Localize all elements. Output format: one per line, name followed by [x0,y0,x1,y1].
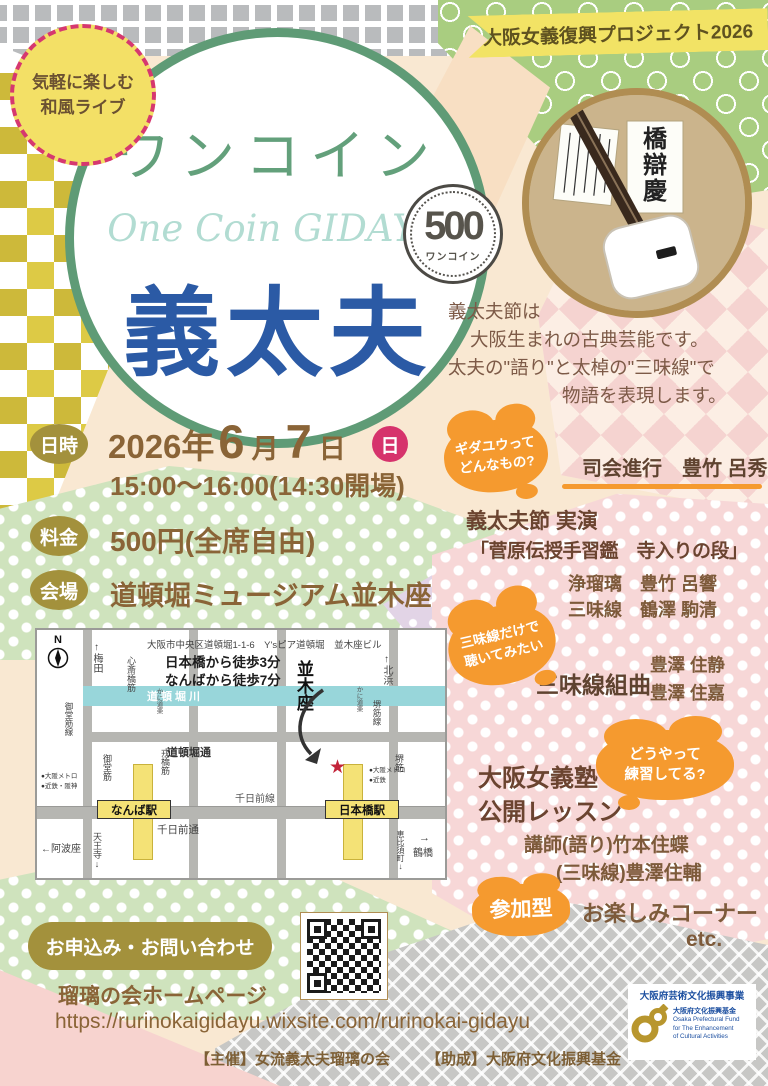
flyer-poster: 気軽に楽しむ 和風ライブ 大阪女義復興プロジェクト2026 ワンコイン One … [0,0,768,1086]
walk-from-nihonbashi: 日本橋から徒歩3分 [165,654,281,672]
500yen-coin-icon: 500 ワンコイン [403,184,503,284]
shamisen-photo: 橋辯慶 [522,88,752,318]
date-day-unit: 日 [319,427,346,466]
map-label-dotonbori-dori: 道頓堀通 [167,744,211,760]
organizer-credit: 【主催】女流義太夫瑠璃の会 [195,1048,390,1069]
map-label-sennichimae-line: 千日前線 [235,790,275,805]
datetime-badge: 日時 [30,424,88,464]
joruri-credit: 浄瑠璃 豊竹 呂響 [568,570,717,596]
map-label-ebisucho: 恵比須町↓ [395,830,406,871]
date-year: 2026年 [108,420,214,468]
title-kanji: 義太夫 [74,254,481,395]
map-nihonbashi-notes: ●大阪メトロ ●近鉄 [369,766,405,786]
qr-code [300,912,388,1000]
map-label-shinsaibashisuji: 心斎橋筋 [125,656,138,692]
map-label-tsuruhashi: 鶴橋 [413,844,433,859]
walk-from-namba: なんばから徒歩7分 [165,672,281,690]
event-fee: 500円(全席自由) [110,520,315,560]
fund-logo-title: 大阪府芸術文化振興事業 [631,988,753,1002]
project-ribbon-text: 大阪女義復興プロジェクト2026 [483,16,754,50]
suite-performer2: 豊澤 住嘉 [650,680,725,705]
etc-label: etc. [686,928,722,952]
participation-label: 参加型 [489,894,553,926]
fund-name-en2: for The Enhancement [673,1025,740,1034]
svg-text:橋辯慶: 橋辯慶 [643,126,668,205]
suite-performer1: 豊澤 住静 [650,652,725,677]
fund-logo-text: 大阪府文化振興基金 Osaka Prefectural Fund for The… [673,1006,740,1042]
grant-credit: 【助成】大阪府文化振興基金 [426,1048,621,1069]
mc-underline-accent [562,484,762,489]
event-date: 2026年 6 月 7 日 [108,414,349,469]
fund-name-en3: of Cultural Activities [673,1033,740,1042]
intro-line4: 物語を表現します。 [562,382,727,410]
compass-icon: N [45,634,71,669]
map-curved-arrow-icon [287,686,337,766]
mc-credit: 司会進行 豊竹 呂秀 [582,452,768,481]
qr-modules [307,919,381,993]
bubble3-line2: 練習してる? [625,765,706,785]
map-label-tsuruhashi-arrow: → [419,832,430,844]
nihonbashi-note2: ●近鉄 [369,776,405,786]
event-time: 15:00〜16:00(14:30開場) [110,466,405,503]
map-label-sakaisuji-line: 堺筋線 [371,700,383,726]
qr-finder-icon [307,919,327,939]
venue-badge: 会場 [30,570,88,610]
bubble-tail [618,795,640,810]
compass-needle-icon [47,647,69,669]
weekday-sunday-badge: 日 [372,426,408,462]
intro-line1: 義太夫節は [448,298,727,326]
casual-badge-line1: 気軽に楽しむ [32,70,134,96]
coin-label: ワンコイン [426,248,481,263]
lesson-teacher1: 講師(語り)竹本住蝶 [524,830,689,857]
map-street-dotonbori [83,732,445,742]
map-address: 大阪市中央区道頓堀1-1-6 Y'sピア道頓堀 並木座ビル [147,637,382,651]
map-namba-notes: ●大阪メトロ ●近鉄・阪神 [41,772,77,792]
date-month: 6 [218,414,244,469]
shamisen-credit: 三味線 鶴澤 駒清 [568,596,717,622]
map-label-kanidoraku-east: かに道楽 [353,686,363,712]
casual-badge-line2: 和風ライブ [41,95,126,121]
osaka-fund-logo: 大阪府芸術文化振興事業 大阪府文化振興基金 Osaka Prefectural … [628,984,756,1060]
compass-n: N [54,634,62,646]
footer-credits: 【主催】女流義太夫瑠璃の会 【助成】大阪府文化振興基金 [195,1048,621,1069]
intro-description: 義太夫節は 大阪生まれの古典芸能です。 太夫の"語り"と太棹の"三味線"で 物語… [448,298,727,410]
bubble3-line1: どうやって [629,745,701,765]
casual-live-badge: 気軽に楽しむ 和風ライブ [10,24,156,166]
namba-note2: ●近鉄・阪神 [41,782,77,792]
map-venue-star-icon: ★ [329,756,346,779]
map-label-tennoji: 天王寺↓ [91,832,104,869]
project-ribbon-banner: 大阪女義復興プロジェクト2026 [468,8,768,58]
map-label-midosuji: 御堂筋 [101,754,114,781]
fund-name-en1: Osaka Prefectural Fund [673,1016,740,1025]
namba-note1: ●大阪メトロ [41,772,77,782]
shamisen-illustration: 橋辯慶 [529,95,745,311]
homepage-label: 瑠璃の会ホームページ [58,980,267,1010]
performance-title: 義太夫節 実演 [466,505,598,535]
event-venue: 道頓堀ミュージアム並木座 [110,574,432,613]
fee-badge: 料金 [30,516,88,556]
qr-finder-icon [361,919,381,939]
coin-value: 500 [424,206,482,246]
lesson-teacher2: (三味線)豊澤住輔 [556,858,702,885]
map-label-midosuji-line: 御堂筋線 [63,702,75,736]
map-namba-station: なんば駅 [97,800,171,819]
map-label-umeda: ↑梅田 [89,642,104,673]
access-map: 道頓堀川 N 大阪市中央区道頓堀1-1-6 Y'sピア道頓堀 並木座ビル 日本橋… [35,628,447,880]
contact-heading-pill: お申込み・お問い合わせ [28,922,272,970]
open-lesson-line1: 大阪女義塾 [478,758,598,793]
qr-finder-icon [307,973,327,993]
nihonbashi-note1: ●大阪メトロ [369,766,405,776]
map-label-awaza: ←阿波座 [41,840,81,855]
map-label-kanidoraku-west: かに道楽 [153,688,163,714]
intro-line2: 大阪生まれの古典芸能です。 [470,326,727,354]
homepage-url: https://rurinokaigidayu.wixsite.com/ruri… [55,1010,530,1034]
map-label-kitahama: ↑北浜 [379,654,394,685]
performance-piece: 「菅原伝授手習鑑 寺入りの段」 [470,536,748,563]
fun-corner-label: お楽しみコーナー [582,896,758,928]
date-month-unit: 月 [252,427,279,466]
open-lesson-line2: 公開レッスン [478,792,622,827]
speech-bubble-how-practice: どうやって 練習してる? [596,730,734,800]
bubble-tail [515,483,538,500]
fund-name-jp: 大阪府文化振興基金 [673,1006,740,1016]
map-nihonbashi-station: 日本橋駅 [325,800,399,819]
map-walk-info: 日本橋から徒歩3分 なんばから徒歩7分 [165,654,281,690]
gourd-logo-icon [631,1004,671,1044]
intro-line3: 太夫の"語り"と太棹の"三味線"で [448,354,727,382]
date-day: 7 [286,414,312,469]
map-label-sennichimae-dori: 千日前通 [157,822,199,837]
speech-bubble-what-is-gidayu: ギダユウって どんなもの? [441,415,552,497]
